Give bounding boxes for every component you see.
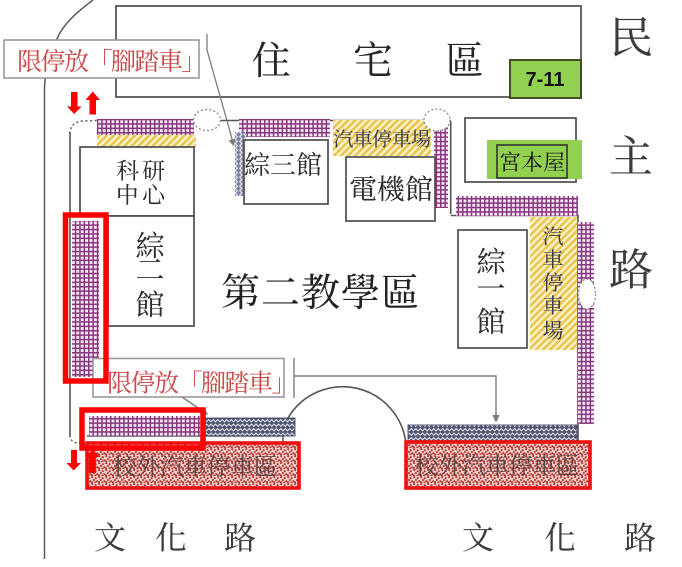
svg-text:綜三館: 綜三館 xyxy=(244,145,322,182)
svg-text:文: 文 xyxy=(94,513,126,559)
svg-text:主: 主 xyxy=(609,121,653,185)
svg-text:民: 民 xyxy=(609,2,653,66)
svg-text:化: 化 xyxy=(544,513,576,559)
svg-text:館: 館 xyxy=(476,300,505,341)
svg-text:區: 區 xyxy=(445,30,484,86)
svg-text:場: 場 xyxy=(543,315,564,345)
svg-text:化: 化 xyxy=(155,513,187,559)
svg-text:宮本屋: 宮本屋 xyxy=(499,146,565,177)
svg-text:限停放「腳踏車」: 限停放「腳踏車」 xyxy=(107,364,295,400)
svg-text:電機館: 電機館 xyxy=(349,168,433,208)
svg-text:路: 路 xyxy=(609,234,653,298)
svg-text:中心: 中心 xyxy=(116,177,168,210)
svg-text:路: 路 xyxy=(624,513,656,559)
svg-text:住: 住 xyxy=(251,30,290,86)
svg-text:限停放「腳踏車」: 限停放「腳踏車」 xyxy=(17,42,205,78)
svg-text:校外汽車停車區: 校外汽車停車區 xyxy=(113,447,278,482)
svg-text:館: 館 xyxy=(135,283,164,324)
svg-text:汽車停車場: 汽車停車場 xyxy=(333,123,431,152)
svg-text:校外汽車停車區: 校外汽車停車區 xyxy=(415,446,580,481)
svg-text:路: 路 xyxy=(224,513,256,559)
svg-text:7-11: 7-11 xyxy=(526,69,565,91)
svg-text:第二教學區: 第二教學區 xyxy=(221,262,421,318)
svg-text:宅: 宅 xyxy=(353,30,392,86)
svg-text:文: 文 xyxy=(462,513,494,559)
